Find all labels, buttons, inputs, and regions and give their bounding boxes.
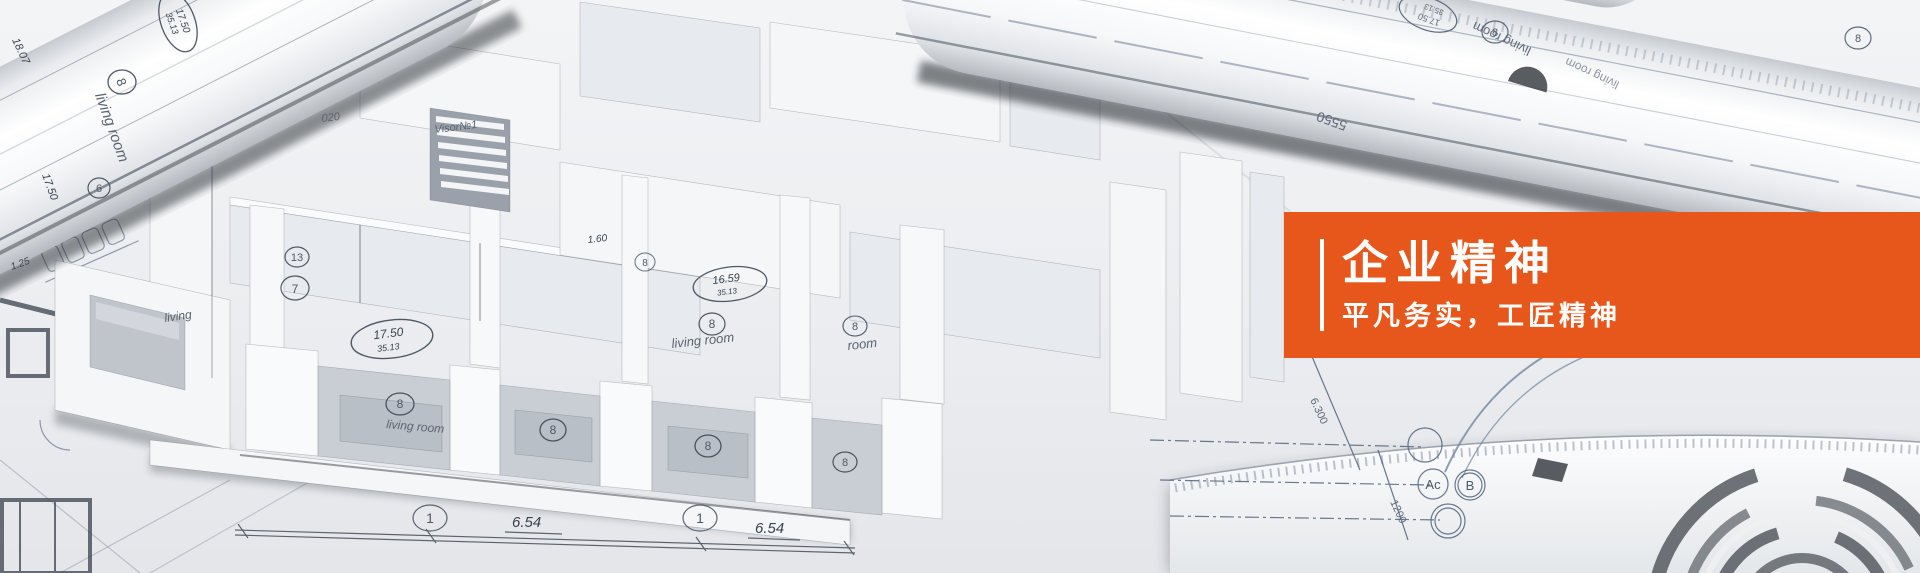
mark-8-small: 8: [642, 258, 648, 269]
mark-8-room2: 8: [852, 321, 858, 333]
roll2-mark-8b: 8: [1855, 33, 1861, 45]
company-spirit-banner: living room 8 17.50 35.13 18.07 17.50 1.…: [0, 0, 1920, 573]
axis-mark-1b: 1: [696, 510, 704, 526]
dim-160: 1.60: [587, 233, 608, 246]
slogan-texts: 企业精神 平凡务实，工匠精神: [1342, 240, 1621, 330]
slogan-title: 企业精神: [1342, 240, 1621, 286]
accent-divider-bar: [1320, 239, 1324, 331]
plate-mark-8d: 8: [842, 457, 848, 469]
dim-654a: 6.54: [512, 514, 541, 531]
room-partial: room: [847, 335, 878, 353]
stamp-020: 020: [321, 111, 342, 125]
mark-13: 13: [291, 252, 303, 264]
mark-Ac: Ac: [1425, 477, 1441, 492]
mark-7: 7: [292, 282, 299, 296]
plate-mark-8a: 8: [397, 397, 404, 411]
slogan-subtitle: 平凡务实，工匠精神: [1342, 303, 1621, 330]
slogan-panel: 企业精神 平凡务实，工匠精神: [1284, 212, 1920, 358]
plate-mark-8c: 8: [705, 439, 712, 453]
mark-6: 6: [96, 183, 102, 195]
mark-8-room: 8: [709, 317, 716, 331]
dim-654b: 6.54: [755, 520, 784, 537]
plate-mark-8b: 8: [550, 423, 557, 437]
mark-B: B: [1466, 478, 1475, 493]
axis-mark-1a: 1: [426, 510, 434, 526]
